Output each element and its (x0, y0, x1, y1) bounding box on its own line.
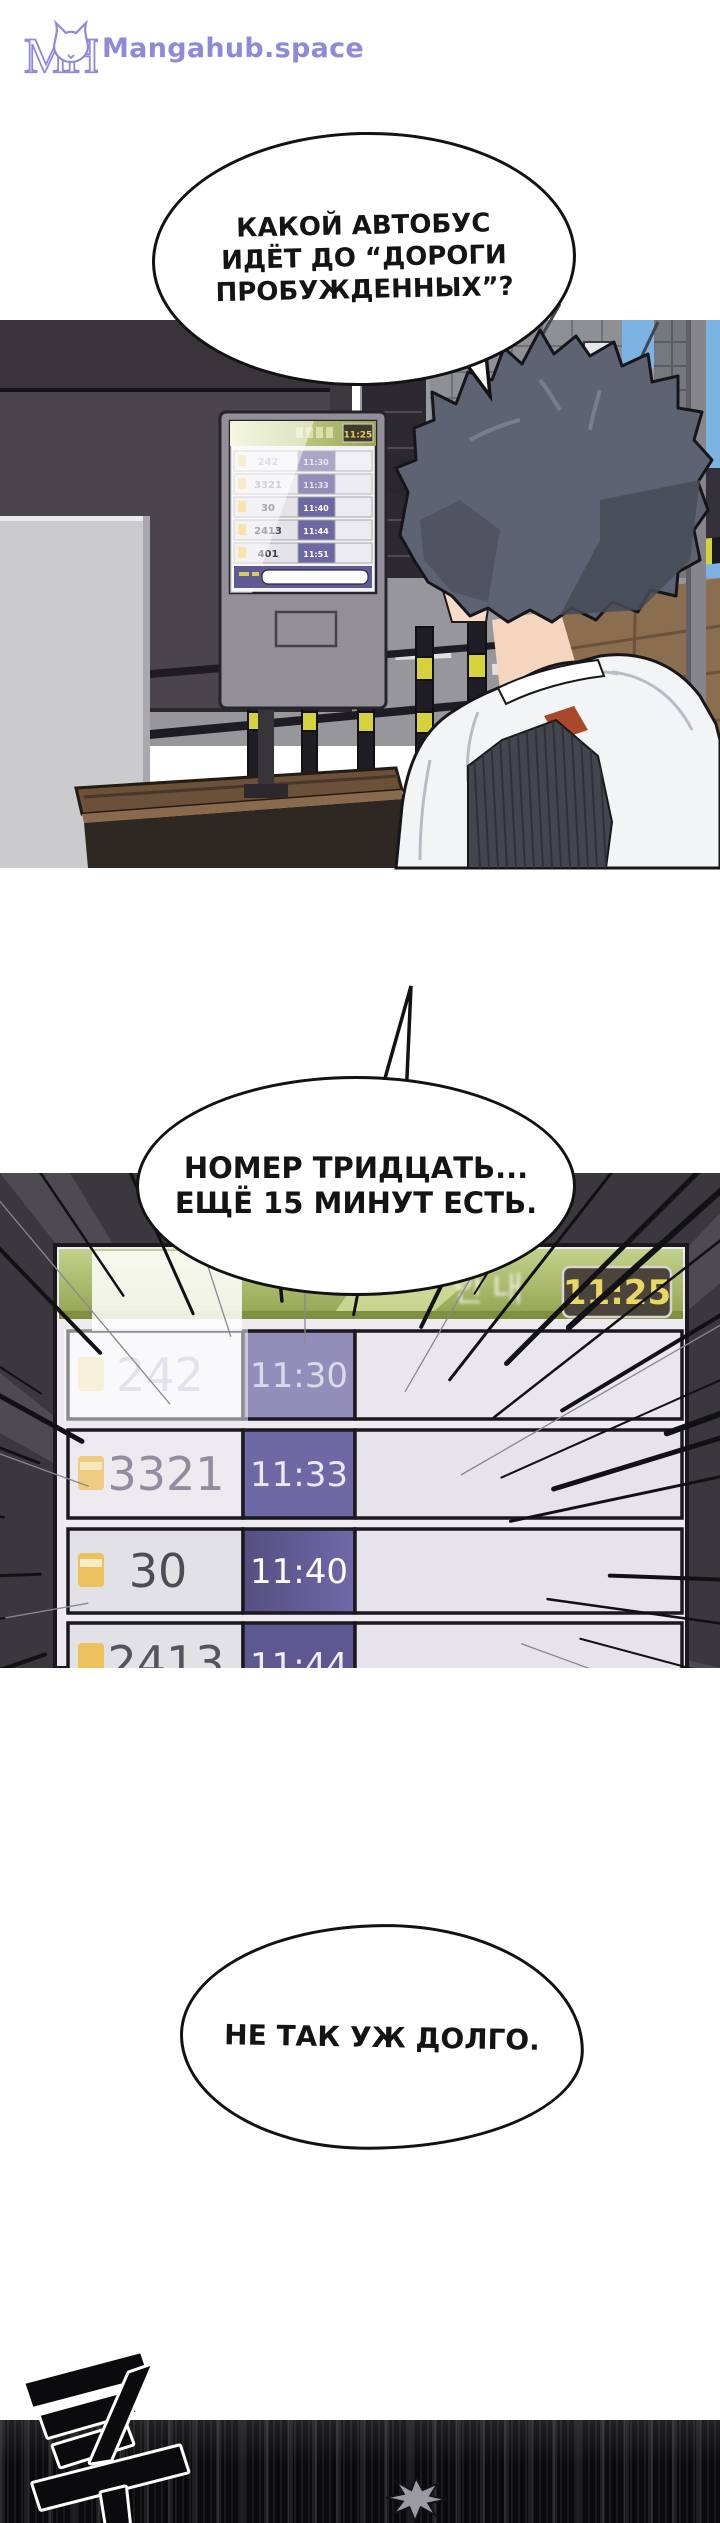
svg-text:11:51: 11:51 (303, 550, 329, 559)
manga-page: M H Mangahub.space (0, 0, 720, 2523)
svg-text:11:40: 11:40 (303, 504, 329, 513)
speech-bubble-2: НОМЕР ТРИДЦАТЬ... ЕЩЁ 15 МИНУТ ЕСТЬ. (136, 1076, 576, 1296)
svg-text:11:40: 11:40 (250, 1552, 348, 1592)
svg-text:2413: 2413 (107, 1636, 224, 1668)
svg-text:11:33: 11:33 (303, 481, 328, 490)
sfx-glyph-ku (16, 2345, 220, 2523)
kiosk-clock: 11:25 (344, 431, 373, 441)
bus-icon (78, 1456, 104, 1490)
bubble-2-line: НОМЕР ТРИДЦАТЬ... (184, 1151, 528, 1186)
svg-text:11:33: 11:33 (250, 1455, 348, 1495)
svg-text:3321: 3321 (107, 1447, 224, 1501)
panel-1-bus-stop-scene: 11:25 242 11:30 3321 11:33 (0, 320, 720, 868)
starburst-shape (380, 2478, 452, 2523)
bus-icon (78, 1553, 104, 1587)
svg-text:11:44: 11:44 (250, 1646, 348, 1668)
bubble-2-line: ЕЩЁ 15 МИНУТ ЕСТЬ. (175, 1186, 537, 1221)
speech-bubble-3: НЕ ТАК УЖ ДОЛГО. (178, 1920, 586, 2153)
bubble-1-line: ПРОБУЖДЕННЫХ”? (215, 272, 514, 310)
svg-text:11:44: 11:44 (303, 527, 329, 536)
mangahub-fox-logo-icon[interactable]: M H (24, 20, 98, 80)
svg-text:11:30: 11:30 (250, 1356, 348, 1396)
bubble-3-line: НЕ ТАК УЖ ДОЛГО. (224, 2018, 540, 2057)
schedule-row-2413: 2413 11:44 (68, 1623, 682, 1668)
kiosk-search-input (262, 570, 368, 584)
bus-icon (78, 1643, 104, 1668)
schedule-row-30: 30 11:40 (68, 1529, 682, 1613)
svg-text:30: 30 (129, 1544, 188, 1598)
svg-text:11:30: 11:30 (303, 458, 329, 467)
brand-text[interactable]: Mangahub.space (102, 33, 364, 64)
